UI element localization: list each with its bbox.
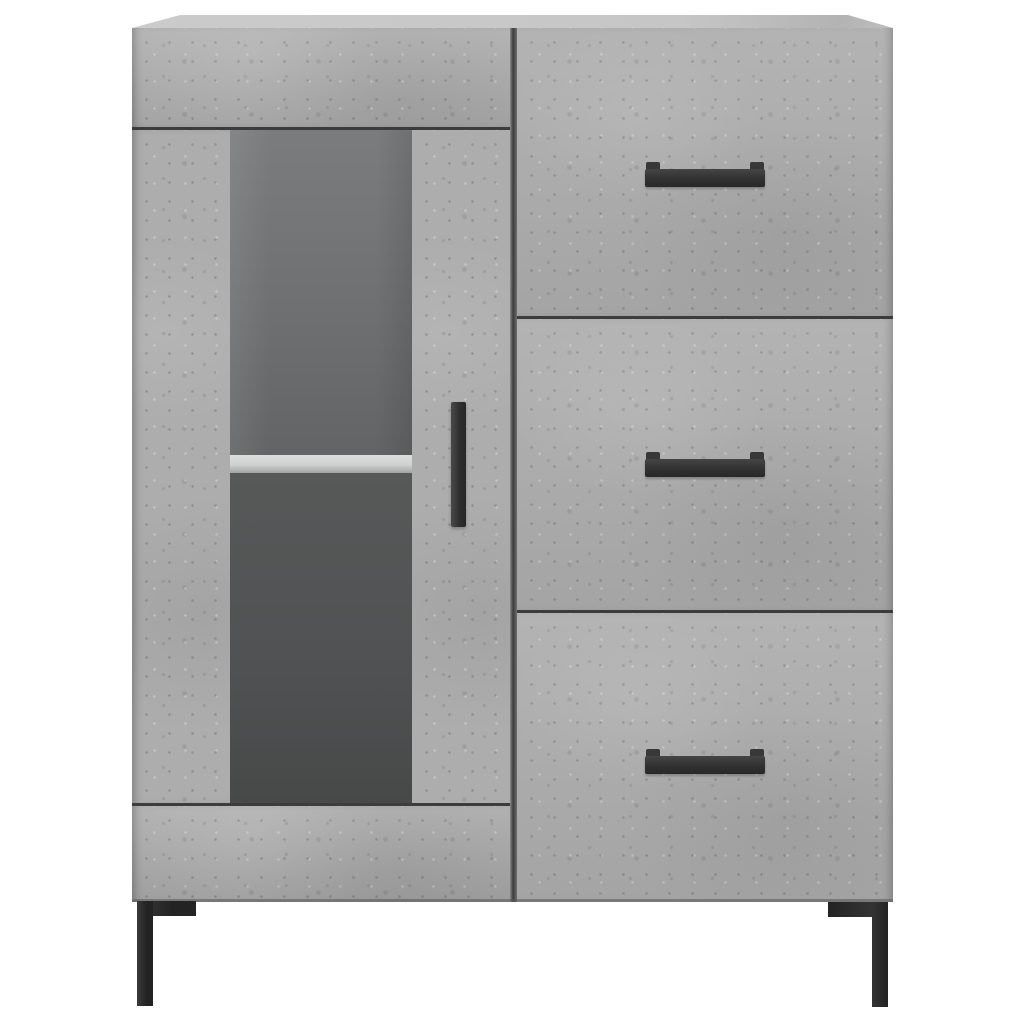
door-handle xyxy=(451,402,466,527)
door-glass-panel xyxy=(230,130,412,803)
left-top-rail xyxy=(132,28,510,127)
left-leg-post xyxy=(137,901,153,1006)
cabinet-top-surface xyxy=(132,15,893,28)
door-left-stile xyxy=(132,130,230,803)
cabinet-divider-gap xyxy=(510,28,517,902)
glass-interior-upper xyxy=(230,130,412,455)
drawer-bottom-handle xyxy=(645,749,765,774)
left-bottom-rail xyxy=(132,806,510,902)
drawer-middle-handle xyxy=(645,452,765,477)
interior-shelf xyxy=(230,455,412,473)
product-photo xyxy=(0,0,1024,1024)
handle-bar xyxy=(645,756,765,774)
cabinet-bottom-edge xyxy=(132,899,893,902)
drawer-top-handle xyxy=(645,162,765,187)
glass-interior-lower xyxy=(230,473,412,803)
right-leg-post xyxy=(872,902,888,1007)
handle-bar xyxy=(645,459,765,477)
handle-bar xyxy=(645,169,765,187)
